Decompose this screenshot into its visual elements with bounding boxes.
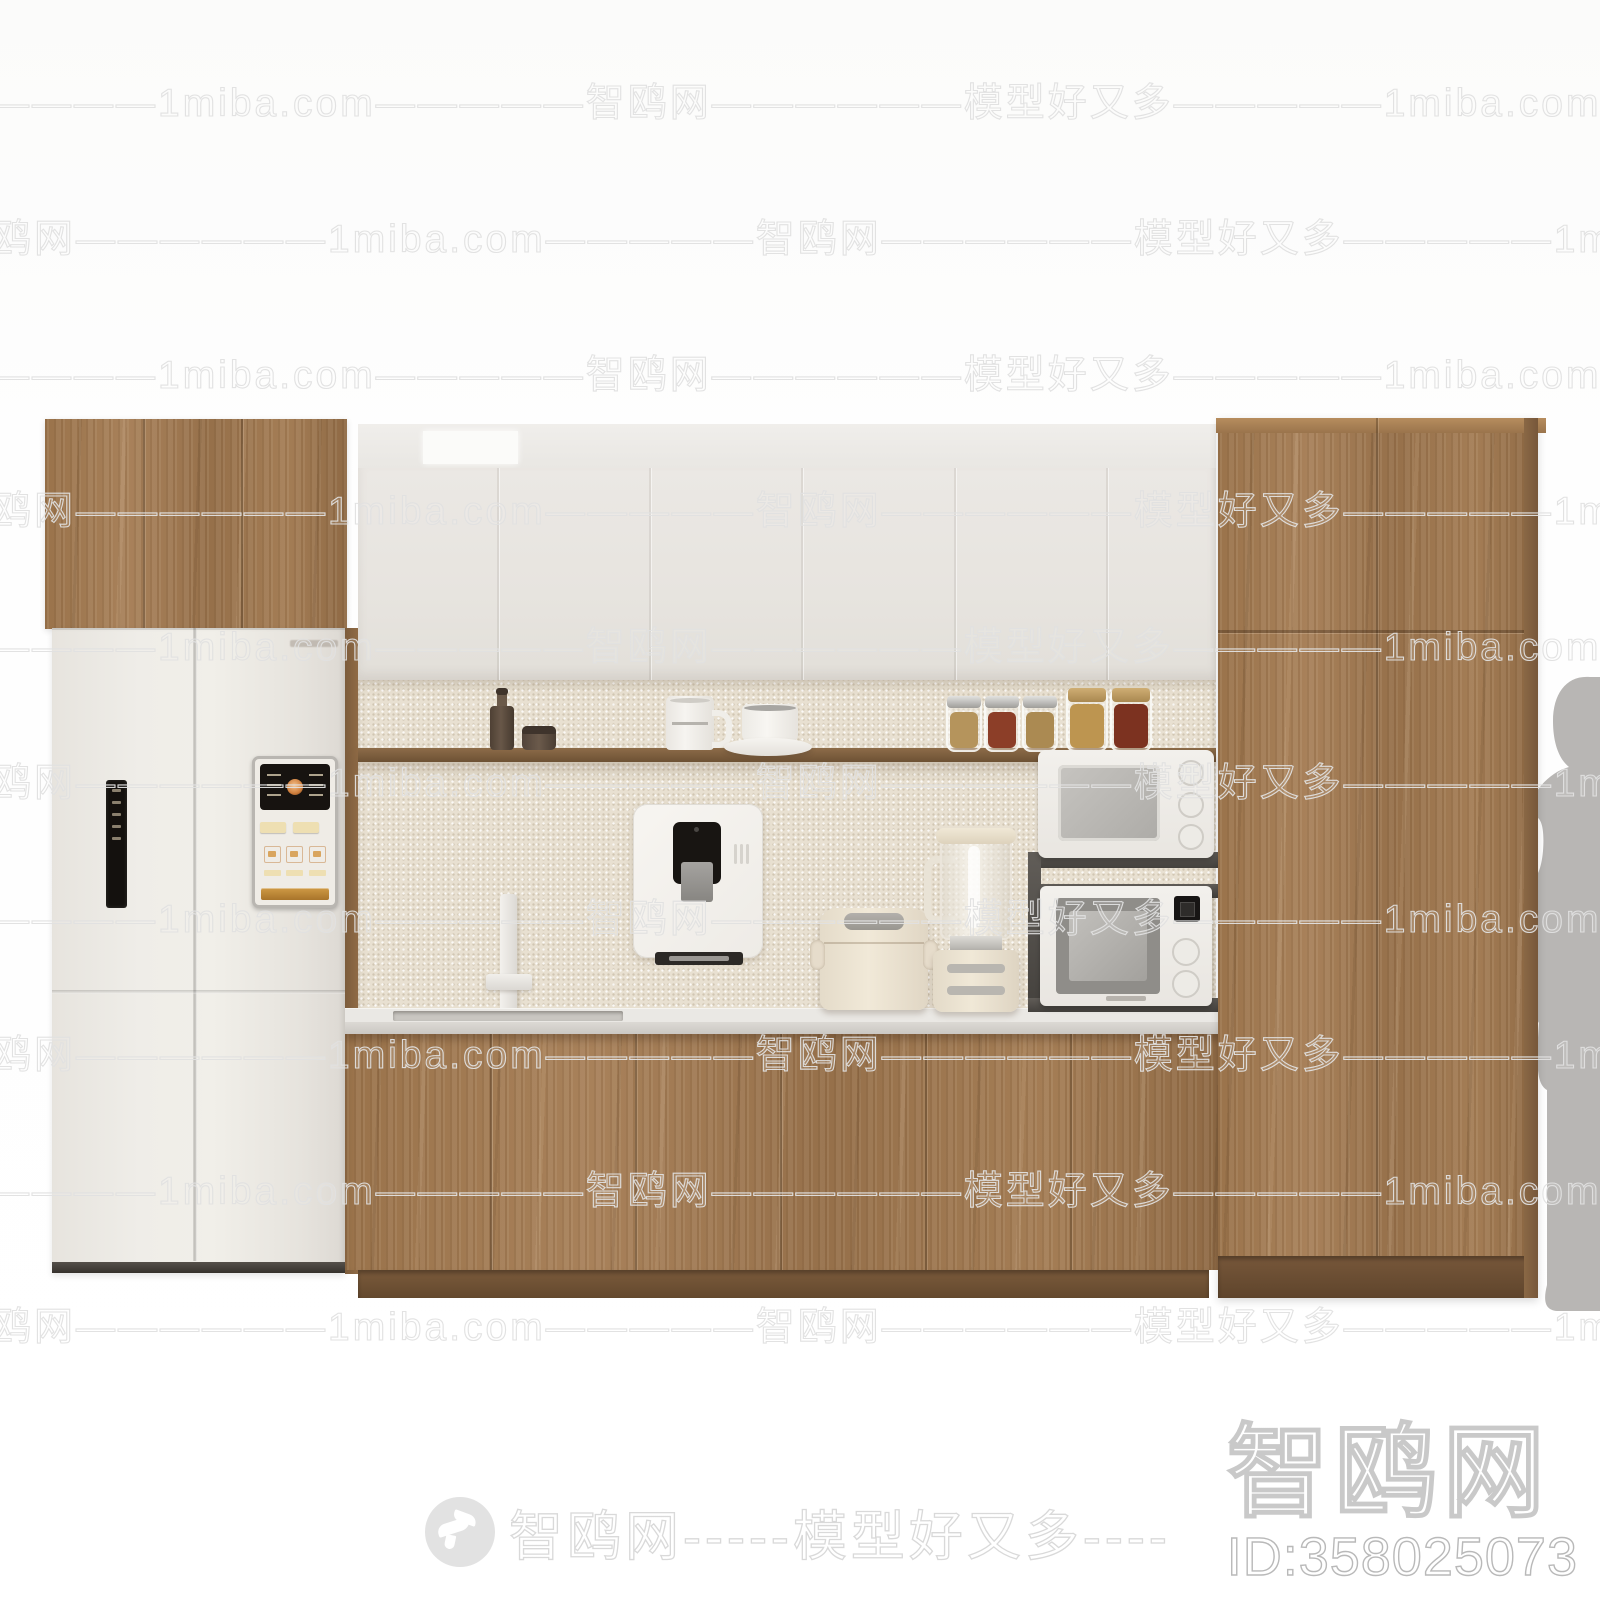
dispenser-spout <box>681 862 713 902</box>
spice-jar <box>984 696 1020 752</box>
blender <box>928 830 1024 1012</box>
watermark-banner-text: 智鸥网-----模型好又多---- <box>509 1492 1171 1571</box>
upper-cabinet-doors <box>358 468 1216 680</box>
right-tall-cabinet <box>1218 418 1538 1298</box>
render-canvas: —————智鸥网——————1miba.com—————智鸥网——————模型好… <box>0 0 1600 1600</box>
temperature-indicator <box>287 779 303 795</box>
white-mug <box>666 696 714 750</box>
cabinet-door-seam <box>241 419 243 629</box>
cabinet-door-seam <box>143 419 145 629</box>
dispenser-button <box>260 822 286 833</box>
dispenser-accent-bar <box>261 888 329 900</box>
microwave-window <box>1058 765 1160 841</box>
dispenser-small-buttons <box>261 870 329 876</box>
water-dispenser <box>633 804 763 958</box>
cabinet-divider <box>1218 630 1538 633</box>
cabinet-door-seam <box>1376 418 1378 1298</box>
watermark-site-block: 智鸥网 ID:358025073 <box>1227 1422 1578 1588</box>
saucer <box>724 738 812 756</box>
cabinet-base-band <box>1218 1256 1538 1298</box>
spice-jar <box>1022 696 1058 752</box>
small-brown-jar <box>522 726 556 750</box>
faucet-spout <box>486 974 532 990</box>
watermark-row: —————智鸥网——————1miba.com—————智鸥网——————模型好… <box>0 1296 1600 1352</box>
microwave-dial <box>1172 938 1200 966</box>
microwave-bottom <box>1040 886 1212 1006</box>
fridge-door-gap-horizontal <box>52 990 345 994</box>
base-cabinets <box>345 1034 1222 1270</box>
upper-wall-cabinets <box>358 424 1216 680</box>
microwave-dial <box>1178 760 1204 786</box>
rice-cooker-lid <box>844 913 904 930</box>
microwave-dial <box>1178 792 1204 818</box>
fridge-mini-display <box>106 780 127 908</box>
fridge-display-screen <box>260 764 330 810</box>
blender-lid <box>936 828 1016 844</box>
model-id-label: ID:358025073 <box>1227 1526 1578 1588</box>
toe-kick <box>358 1270 1209 1298</box>
rice-cooker <box>820 908 928 1010</box>
fridge-control-panel <box>252 756 338 908</box>
left-wall-cabinet <box>45 419 347 629</box>
faucet <box>500 894 517 1012</box>
site-name-watermark: 智鸥网 <box>1227 1422 1578 1524</box>
cabinet-side-panel <box>1524 418 1538 1298</box>
blender-jar <box>940 840 1012 940</box>
fridge-brand-mark <box>290 640 338 647</box>
sink <box>393 1011 623 1021</box>
dispenser-button <box>293 822 319 833</box>
watermark-row: —————智鸥网——————1miba.com—————智鸥网——————模型好… <box>0 72 1600 128</box>
microwave-door <box>1056 898 1160 994</box>
fridge-base-grille <box>52 1262 345 1273</box>
drip-tray <box>655 952 743 965</box>
watermark-row: —————智鸥网——————1miba.com—————智鸥网——————模型好… <box>0 344 1600 400</box>
microwave-dial <box>1178 824 1204 850</box>
microwave-dial <box>1172 970 1200 998</box>
refrigerator <box>52 628 345 1273</box>
watermark-banner: 智鸥网-----模型好又多---- <box>425 1492 1171 1571</box>
blender-base <box>933 950 1019 1012</box>
coffee-grinder <box>490 692 514 750</box>
microwave-brand-mark <box>1106 996 1146 1001</box>
cabinet-crown <box>1216 418 1546 433</box>
counter-front-edge <box>345 1022 1222 1034</box>
spice-jar <box>946 696 982 752</box>
dispenser-mode-icons <box>261 846 329 863</box>
spice-jar-large <box>1066 688 1108 752</box>
recessed-light-panel <box>423 431 518 464</box>
watermark-row: —————智鸥网——————1miba.com—————智鸥网——————模型好… <box>0 208 1600 264</box>
spice-jar-large <box>1110 688 1152 752</box>
microwave-top <box>1038 750 1214 858</box>
bird-logo-icon <box>425 1497 495 1567</box>
microwave-power-button <box>1174 896 1200 922</box>
fridge-door-gap <box>193 628 197 1261</box>
